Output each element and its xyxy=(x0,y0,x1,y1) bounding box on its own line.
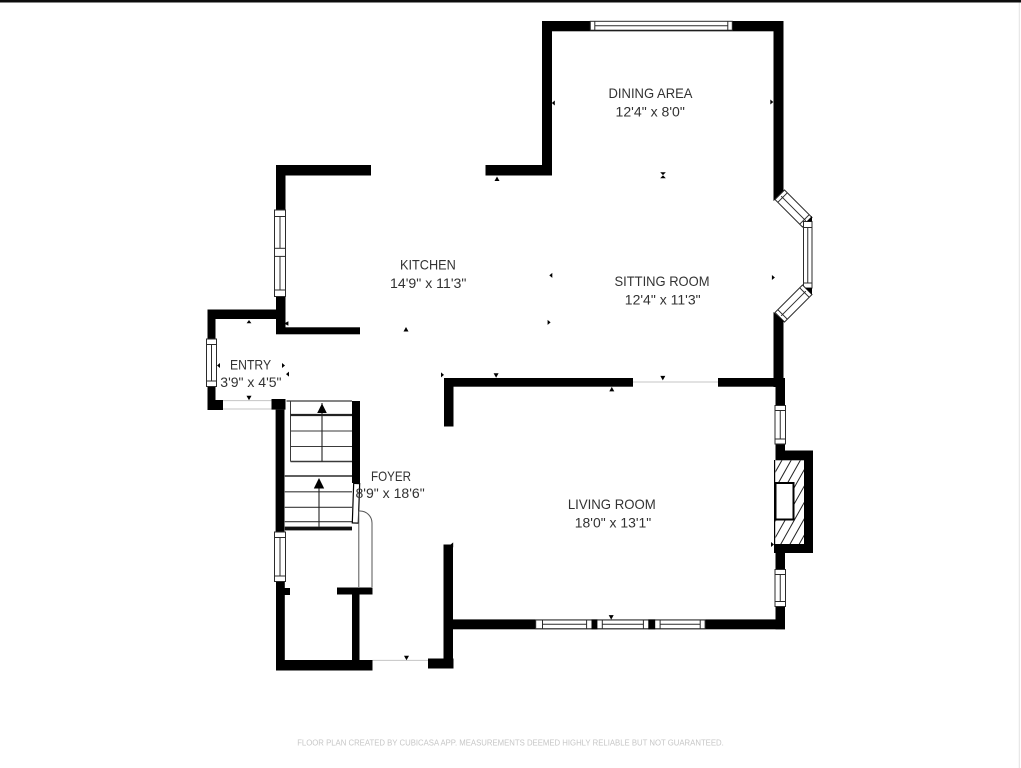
svg-text:FOYER: FOYER xyxy=(371,469,411,484)
svg-text:12'4" x 8'0": 12'4" x 8'0" xyxy=(616,104,685,119)
svg-text:14'9" x 11'3": 14'9" x 11'3" xyxy=(390,276,466,291)
svg-text:SITTING ROOM: SITTING ROOM xyxy=(615,274,710,289)
svg-text:KITCHEN: KITCHEN xyxy=(400,258,456,273)
svg-text:FLOOR PLAN CREATED BY CUBICASA: FLOOR PLAN CREATED BY CUBICASA APP. MEAS… xyxy=(297,739,724,748)
svg-text:DINING AREA: DINING AREA xyxy=(609,86,694,101)
svg-text:18'0" x 13'1": 18'0" x 13'1" xyxy=(575,515,651,530)
svg-text:8'9" x 18'6": 8'9" x 18'6" xyxy=(356,486,425,501)
svg-text:ENTRY: ENTRY xyxy=(230,357,271,372)
svg-text:LIVING ROOM: LIVING ROOM xyxy=(568,497,656,512)
svg-text:12'4" x 11'3": 12'4" x 11'3" xyxy=(625,292,701,307)
svg-text:3'9" x 4'5": 3'9" x 4'5" xyxy=(220,375,281,390)
